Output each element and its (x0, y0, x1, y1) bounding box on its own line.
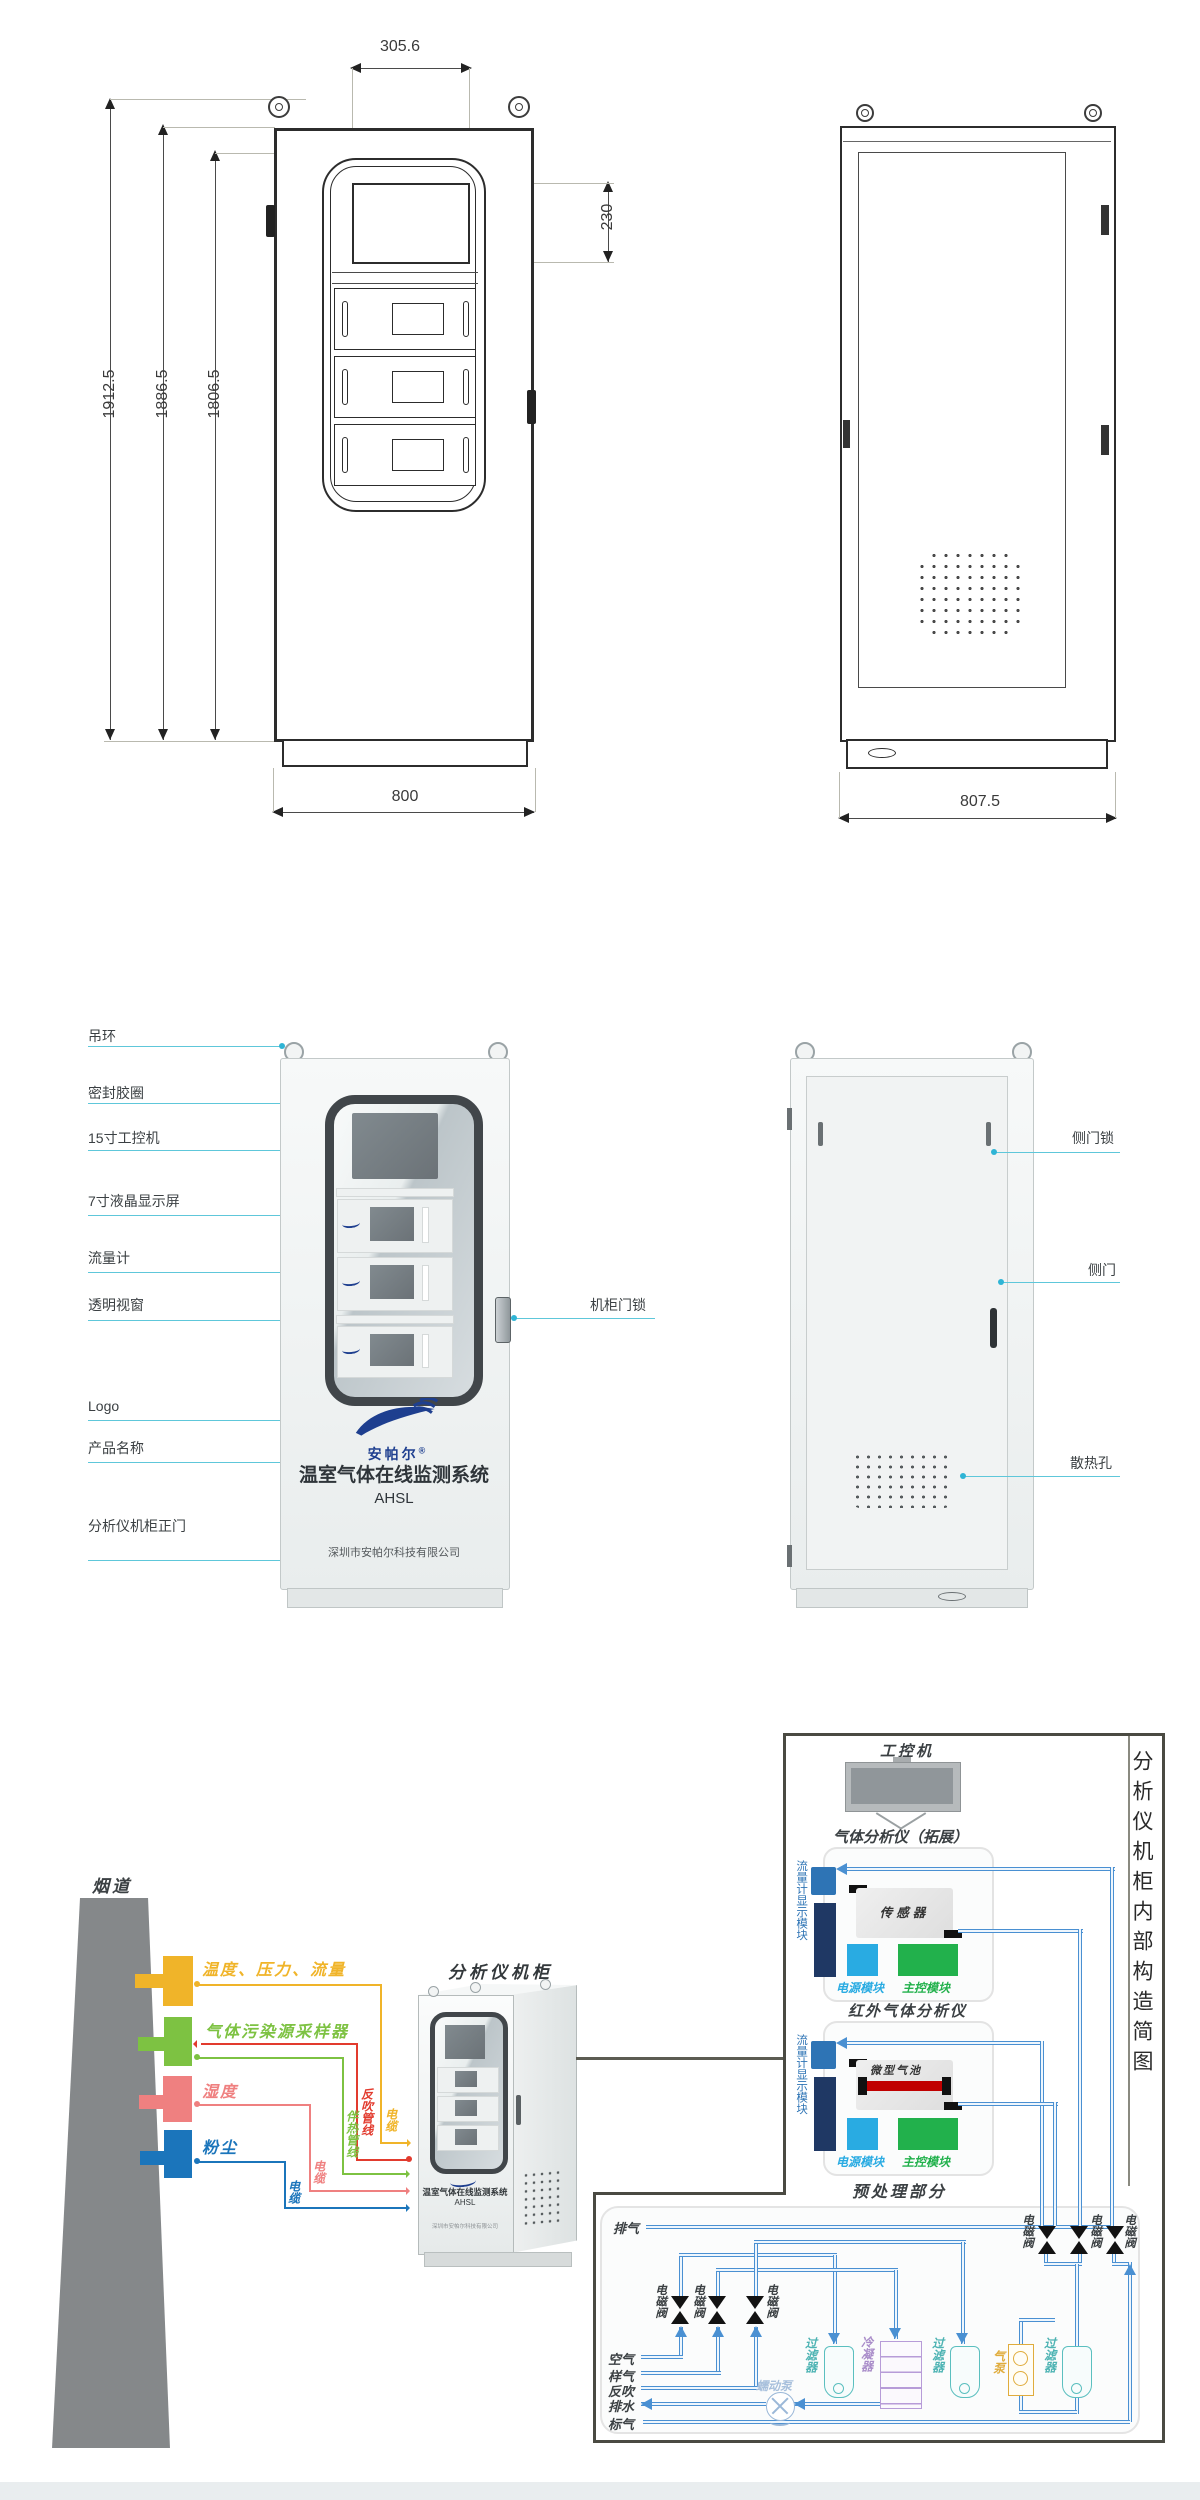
callout-lcd: 7寸液晶显示屏 (88, 1191, 180, 1211)
cabinet-base (796, 1588, 1028, 1608)
sensor-block-label: 传感器 (880, 1905, 930, 1920)
dim-line (840, 818, 1116, 819)
extension-line (273, 768, 274, 812)
power-module-block (847, 1944, 878, 1976)
pipe-arrow (712, 2326, 724, 2337)
footer-strip (0, 2482, 1200, 2500)
extension-line (104, 741, 274, 742)
pipe (1053, 2102, 1057, 2226)
cabinet-3d-title: 分析仪机柜 (448, 1958, 553, 1983)
analyzer-ir-title: 红外气体分析仪 (848, 2000, 967, 2021)
model-name: AHSL (286, 1490, 502, 1507)
solenoid-valve-icon (746, 2296, 764, 2324)
pipe (958, 2102, 1058, 2106)
dim-front-width: 800 (345, 788, 465, 806)
pipe-arrow (641, 2398, 652, 2410)
dim-door-height: 1806.5 (206, 354, 224, 434)
module-lcd (455, 2071, 477, 2087)
module-screen (392, 439, 444, 471)
module-handle (422, 1207, 429, 1243)
callout-logo: Logo (88, 1398, 119, 1414)
panel-divider (332, 283, 478, 284)
side-door-lock (818, 1122, 823, 1146)
module-handle (422, 1265, 429, 1301)
lifting-ring-icon (1084, 104, 1102, 122)
filter-label: 过滤器 (804, 2337, 817, 2373)
condenser-icon (880, 2341, 922, 2409)
dim-line (274, 812, 534, 813)
lifting-ring-icon (268, 96, 290, 118)
front-view-base (282, 739, 528, 767)
gas-cell-cap (858, 2077, 867, 2095)
module-handle (342, 301, 348, 337)
cabinet-base (424, 2252, 572, 2267)
main-module-label: 主控模块 (902, 2153, 950, 2170)
filter-icon (824, 2346, 854, 2398)
sensor-label-sampler: 气体污染源采样器 (205, 2018, 349, 2042)
lifting-ring-icon (540, 1979, 551, 1990)
solenoid-valve-icon (1070, 2226, 1088, 2254)
pipe-arrow (794, 2398, 805, 2410)
callout-line (1002, 1282, 1120, 1283)
solenoid-valve-icon (708, 2296, 726, 2324)
dim-arrow (603, 251, 613, 262)
callout-product-name: 产品名称 (88, 1438, 144, 1458)
solenoid-valve-icon (671, 2296, 689, 2324)
wire (284, 2207, 408, 2209)
hinge (1101, 425, 1109, 455)
dim-arrow (158, 729, 168, 740)
wire (342, 2057, 344, 2175)
callout-dot (960, 1473, 966, 1479)
shelf-divider (336, 1315, 454, 1324)
dim-arrow (158, 124, 168, 135)
pipe (1040, 2041, 1044, 2226)
callout-seal-ring: 密封胶圈 (88, 1083, 144, 1103)
panel-border (783, 1733, 1165, 1736)
sensor-dust (164, 2130, 192, 2178)
dim-arrow (105, 729, 115, 740)
filter-icon (1062, 2346, 1092, 2398)
module-screen (392, 371, 444, 403)
dim-side-depth: 807.5 (915, 793, 1045, 811)
pump-roller (1013, 2371, 1028, 2386)
cabinet-3d-product: 温室气体在线监测系统 (420, 2186, 510, 2198)
cabinet-3d-window (430, 2012, 508, 2174)
wire-dot (406, 2156, 412, 2162)
wire (199, 2161, 286, 2163)
blowback-wire (201, 2043, 358, 2045)
front-view-screen (352, 183, 470, 264)
filter-label: 过滤器 (1043, 2337, 1056, 2373)
pipe-arrow (836, 1863, 847, 1875)
callout-line (964, 1476, 1120, 1477)
hinge (266, 205, 275, 237)
wire (380, 1984, 382, 2144)
wire-arrow (407, 2139, 411, 2147)
main-module-block (898, 2118, 958, 2150)
cable-label-blue: 电缆 (287, 2180, 300, 2204)
callout-cabinet-lock: 机柜门锁 (590, 1295, 646, 1315)
dim-arrow (210, 150, 220, 161)
pipe (641, 2386, 759, 2390)
engineering-drawing-page: 1912.5 1886.5 1806.5 305.6 230 800 (0, 0, 1200, 2500)
sensor-stub (135, 1974, 165, 1988)
sensor-label-humidity: 湿度 (202, 2078, 238, 2102)
ipc-screen (445, 2025, 485, 2059)
side-door-lock (843, 420, 850, 448)
panel-border (593, 2440, 1165, 2443)
sensor-gas-sampler (164, 2017, 192, 2066)
peristaltic-pump-icon (766, 2392, 795, 2421)
solenoid-valve-icon (1038, 2226, 1056, 2254)
module-lcd (455, 2100, 477, 2116)
lifting-ring-icon (508, 96, 530, 118)
wire (342, 2173, 408, 2175)
panel-divider (332, 272, 478, 273)
top-cap-line (843, 141, 1111, 142)
callout-side-door: 侧门 (1088, 1260, 1116, 1280)
display-module-block (814, 2077, 836, 2151)
pipe (1078, 1929, 1082, 2226)
side-door-handle (990, 1308, 997, 1348)
product-name: 温室气体在线监测系统 (286, 1460, 502, 1487)
callout-vent: 散热孔 (1070, 1453, 1112, 1473)
main-module-block (898, 1944, 958, 1976)
wire (380, 2142, 408, 2144)
pipe-arrow (889, 2328, 901, 2339)
flow-display-label: 流量计显示模块 (795, 2034, 807, 2115)
dim-line (215, 152, 216, 740)
lifting-ring-icon (470, 1982, 481, 1993)
callout-line (88, 1046, 281, 1047)
pipe (1128, 2262, 1132, 2422)
module-lcd (370, 1334, 414, 1366)
pump-base (770, 2419, 790, 2426)
callout-line (515, 1318, 655, 1319)
dim-arrow (524, 807, 535, 817)
callout-window: 透明视窗 (88, 1295, 144, 1315)
sensor-label-dust: 粉尘 (202, 2134, 238, 2158)
cable-label-pink: 电缆 (312, 2160, 325, 2184)
peristaltic-pump-label: 蠕动泵 (756, 2377, 792, 2394)
main-module-label: 主控模块 (902, 1979, 950, 1996)
flow-display-label: 流量计显示模块 (795, 1860, 807, 1941)
pretreat-title: 预处理部分 (852, 2178, 947, 2202)
sensor-temp-pressure-flow (163, 1956, 193, 2006)
module-handle (463, 369, 469, 405)
base-slot (938, 1592, 966, 1601)
cable-label-yellow: 电缆 (384, 2108, 397, 2132)
pipe-arrow (956, 2333, 968, 2344)
panel-border (593, 2192, 786, 2195)
wire (284, 2161, 286, 2209)
pump-roller (1013, 2351, 1028, 2366)
module-lcd (370, 1207, 414, 1241)
dim-body-height: 1886.5 (154, 354, 172, 434)
dim-top-width: 305.6 (340, 38, 460, 56)
callout-dot (991, 1149, 997, 1155)
valve-label: 电磁阀 (655, 2284, 667, 2319)
module-lcd (455, 2129, 477, 2145)
extension-line (163, 127, 275, 128)
pipe (1110, 1867, 1114, 2226)
pipe (1019, 2394, 1023, 2410)
dim-total-height: 1912.5 (101, 354, 119, 434)
shelf-divider (336, 1188, 454, 1197)
vent-holes (916, 550, 1024, 638)
company-name: 深圳市安帕尔科技有限公司 (286, 1544, 502, 1560)
side-door-lock (986, 1122, 991, 1146)
dim-arrow (210, 729, 220, 740)
callout-lifting-ring: 吊环 (88, 1026, 116, 1046)
power-module-label: 电源模块 (836, 2153, 884, 2170)
wire-arrow (193, 2040, 197, 2048)
cabinet-3d-model: AHSL (420, 2198, 510, 2207)
connector-line (576, 2057, 783, 2060)
power-module-block (847, 2118, 878, 2150)
wire-arrow (406, 2204, 410, 2212)
gas-cell-cap (942, 2077, 951, 2095)
wire (199, 2104, 311, 2106)
callout-side-door-lock: 侧门锁 (1072, 1128, 1114, 1148)
pipe (641, 2355, 683, 2359)
sensor-humidity (163, 2076, 192, 2122)
pipe (1019, 2318, 1055, 2322)
base-slot (868, 748, 896, 758)
pipe (641, 2402, 766, 2406)
transparent-window (325, 1095, 483, 1406)
pipe (843, 2041, 1043, 2045)
wire (199, 1984, 382, 1986)
sensor-stub (138, 2037, 166, 2051)
callout-line (88, 1560, 284, 1561)
pipe (843, 1867, 1115, 1871)
valve-label: 电磁阀 (1022, 2214, 1034, 2249)
dim-screen-height: 230 (599, 187, 617, 247)
power-module-label: 电源模块 (836, 1979, 884, 1996)
lifting-ring-icon (856, 104, 874, 122)
callout-front-door: 分析仪机柜正门 (88, 1516, 186, 1536)
callout-flowmeter: 流量计 (88, 1248, 130, 1268)
cabinet-3d-handle (516, 2095, 521, 2125)
line-span-gas: 标气 (608, 2414, 634, 2433)
pipe-arrow (828, 2333, 840, 2344)
line-drain: 排水 (608, 2396, 634, 2415)
pipe-arrow (675, 2326, 687, 2337)
pipe (961, 2242, 965, 2344)
pipe (1019, 2410, 1077, 2414)
valve-label: 电磁阀 (693, 2284, 705, 2319)
wire-arrow (406, 2187, 410, 2195)
pipe (679, 2253, 837, 2257)
panel-border (783, 1733, 786, 2195)
display-module-block (814, 1903, 836, 1977)
heat-trace-label: 伴热管线 (345, 2110, 358, 2158)
wire (199, 2057, 344, 2059)
registered-mark: ® (419, 1445, 429, 1455)
pipe-arrow (1124, 2264, 1136, 2275)
cabinet-base (287, 1588, 503, 1608)
module-handle (463, 301, 469, 337)
callout-dot (511, 1315, 517, 1321)
sensor-label-tpf: 温度、压力、流量 (202, 1956, 346, 1980)
module-handle (422, 1334, 429, 1368)
sensor-stub (139, 2095, 165, 2109)
wire (309, 2104, 311, 2192)
hinge (787, 1545, 792, 1567)
gas-cell-label: 微型气池 (870, 2062, 922, 2078)
ipc-screen (352, 1113, 438, 1179)
module-handle (342, 369, 348, 405)
analyzer-ext-title: 气体分析仪（拓展） (833, 1826, 968, 1847)
valve-label: 电磁阀 (1090, 2214, 1102, 2249)
pipe-arrow (750, 2326, 762, 2337)
wire (309, 2190, 408, 2192)
condenser-label: 冷凝器 (860, 2336, 873, 2372)
extension-line (535, 768, 536, 812)
callout-line (995, 1152, 1120, 1153)
valve-label: 电磁阀 (766, 2284, 778, 2319)
wire-arrow (406, 2170, 410, 2178)
pipe (754, 2240, 758, 2296)
cabinet-door-handle (495, 1297, 511, 1343)
module-lcd (370, 1265, 414, 1299)
panel-title: 分析仪机柜内部构造简图 (1131, 1750, 1153, 2080)
door-lock (527, 390, 536, 424)
sensor-block: 传感器 (856, 1888, 953, 1938)
exhaust-label: 排气 (613, 2218, 639, 2237)
dim-line (352, 68, 470, 69)
lifting-ring-icon (428, 1986, 439, 1997)
extension-line (839, 772, 840, 818)
pipe-arrow (836, 2037, 847, 2049)
callout-dot (998, 1279, 1004, 1285)
pipe (754, 2240, 966, 2244)
filter-icon (950, 2346, 980, 2398)
brand-logo-icon (352, 1398, 444, 1442)
flue-label: 烟道 (92, 1872, 132, 1897)
pipe (716, 2268, 898, 2272)
module-screen (392, 303, 444, 335)
callout-ipc: 15寸工控机 (88, 1128, 160, 1148)
hinge (787, 1108, 792, 1130)
extension-line (1115, 772, 1116, 818)
solenoid-valve-icon (1106, 2226, 1124, 2254)
panel-border (1162, 1733, 1165, 2443)
blowback-wire (356, 2159, 410, 2161)
dim-arrow (461, 63, 472, 73)
blowback-label: 反吹管线 (360, 2088, 373, 2136)
flow-meter-block (811, 2041, 836, 2069)
gas-cell-tube (866, 2081, 943, 2091)
pipe (643, 2420, 1130, 2424)
vent-holes (522, 2168, 562, 2229)
air-pump-label: 气泵 (992, 2350, 1005, 2374)
valve-label: 电磁阀 (1124, 2214, 1136, 2249)
pipe (958, 1929, 1083, 1933)
module-handle (342, 437, 348, 473)
sensor-stub (140, 2151, 166, 2165)
flow-meter-block (811, 1867, 836, 1895)
pipe (1075, 2264, 1079, 2346)
pipe (641, 2371, 721, 2375)
pipe (679, 2253, 683, 2296)
monitor-screen (851, 1768, 953, 1804)
heat-vent-holes (852, 1452, 952, 1508)
filter-label: 过滤器 (931, 2337, 944, 2373)
cabinet-3d-company: 深圳市安帕尔科技有限公司 (424, 2222, 506, 2230)
pipe (716, 2268, 720, 2296)
panel-border (593, 2192, 596, 2443)
hinge (1101, 205, 1109, 235)
module-handle (463, 437, 469, 473)
air-pump-icon (1008, 2344, 1034, 2396)
